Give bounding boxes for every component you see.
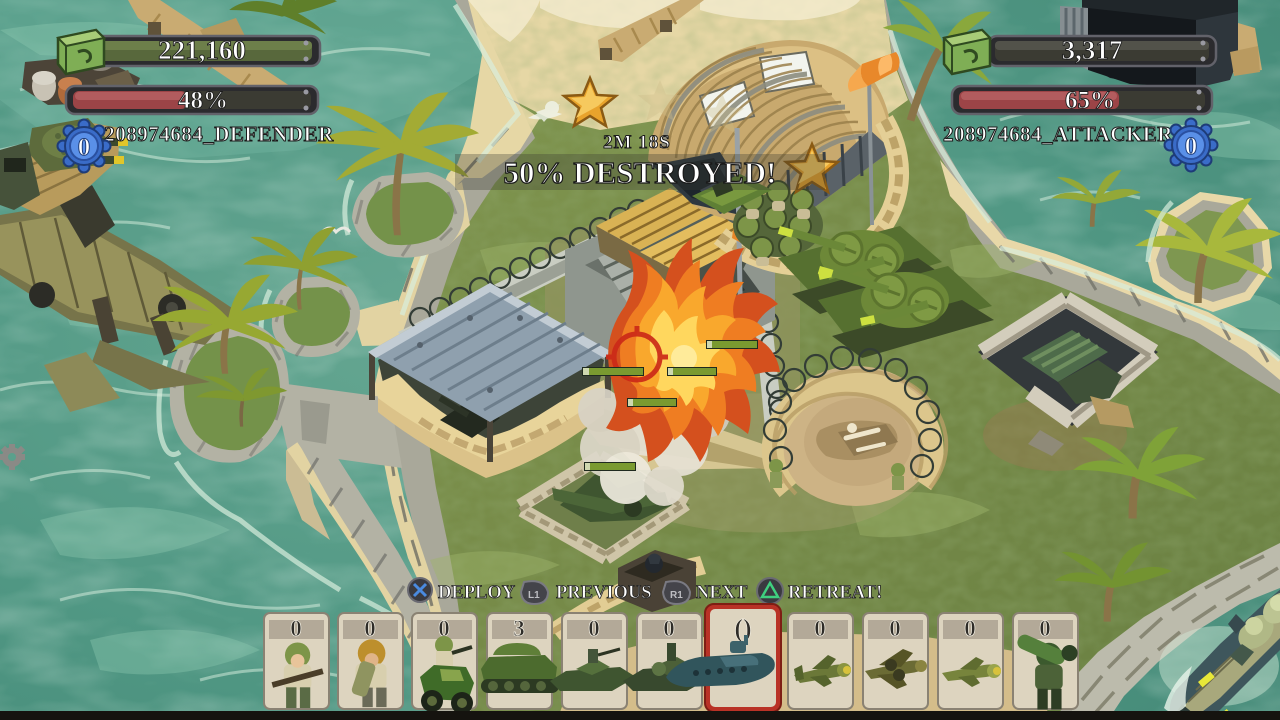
svg-text:PREVIOUS: PREVIOUS (556, 583, 652, 603)
svg-text:0: 0 (78, 134, 91, 161)
svg-text:0: 0 (889, 616, 901, 641)
svg-text:L1: L1 (528, 590, 540, 601)
svg-text:DEPLOY: DEPLOY (438, 583, 516, 603)
svg-text:0: 0 (814, 616, 826, 641)
svg-text:48%: 48% (178, 87, 228, 114)
svg-text:(): () (734, 614, 751, 643)
svg-text:3: 3 (513, 616, 525, 641)
svg-text:NEXT: NEXT (696, 583, 748, 603)
svg-text:50% DESTROYED!: 50% DESTROYED! (503, 155, 776, 190)
svg-text:0: 0 (663, 616, 675, 641)
svg-text:0: 0 (1185, 133, 1198, 160)
svg-text:208974684_ATTACKER: 208974684_ATTACKER (943, 122, 1173, 146)
svg-text:2M 18S: 2M 18S (603, 132, 671, 153)
svg-text:R1: R1 (670, 590, 683, 601)
svg-text:65%: 65% (1065, 87, 1115, 114)
svg-text:221,160: 221,160 (158, 35, 246, 65)
svg-text:0: 0 (1039, 616, 1051, 641)
svg-text:0: 0 (588, 616, 600, 641)
svg-text:0: 0 (964, 616, 976, 641)
svg-text:0: 0 (364, 616, 376, 641)
svg-text:0: 0 (290, 616, 302, 641)
svg-text:3,317: 3,317 (1062, 35, 1123, 65)
svg-text:RETREAT!: RETREAT! (788, 583, 882, 603)
svg-text:208974684_DEFENDER: 208974684_DEFENDER (104, 122, 334, 146)
